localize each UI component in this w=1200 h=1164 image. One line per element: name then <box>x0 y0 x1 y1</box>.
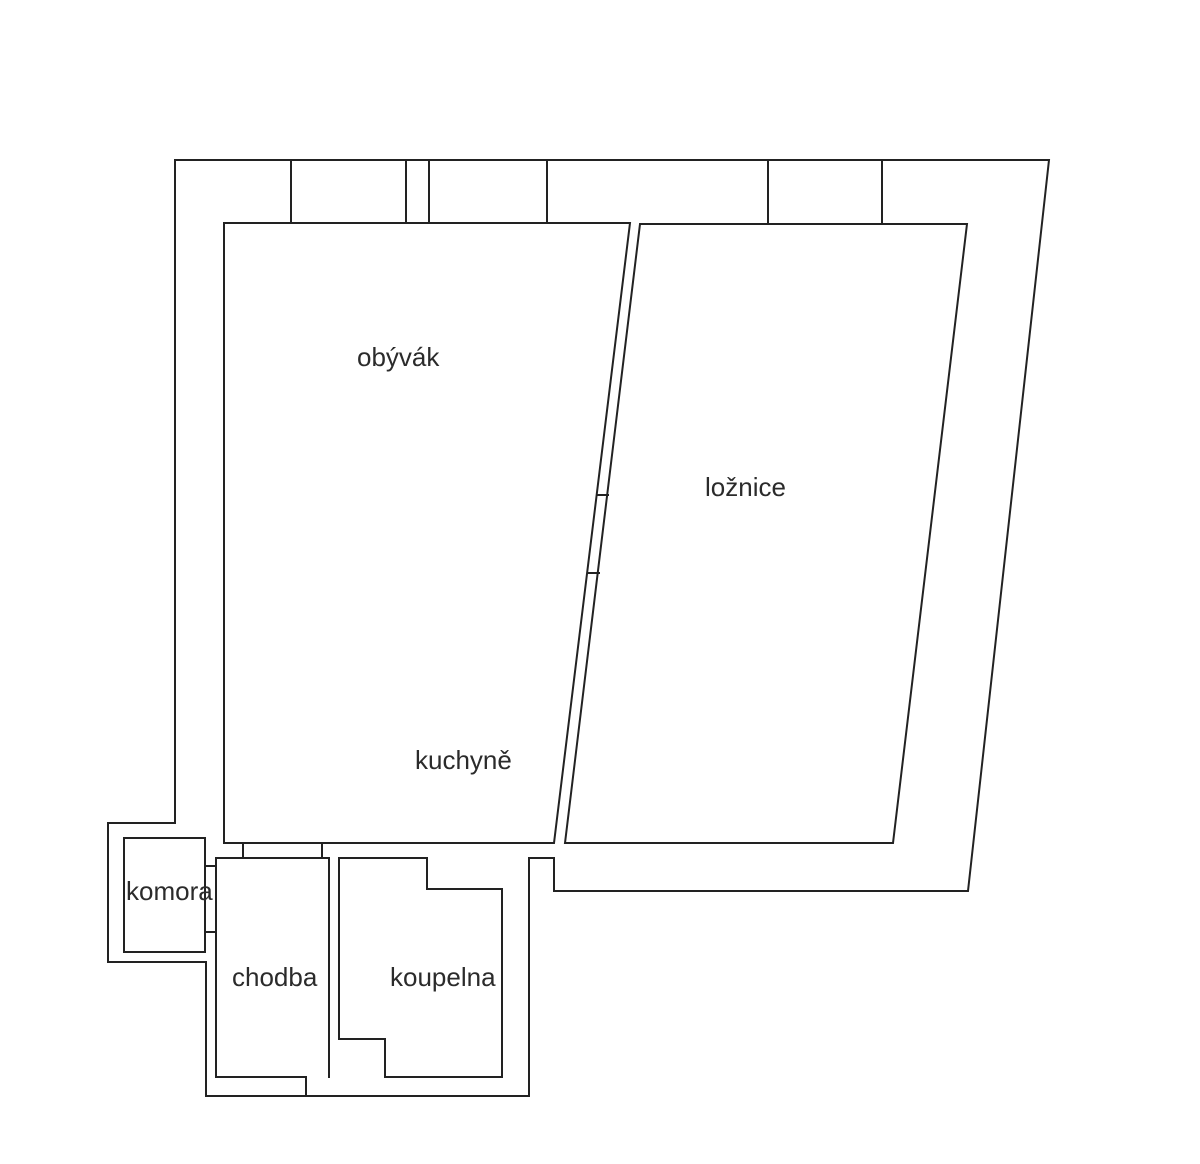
room-label-obyvak: obývák <box>357 342 440 372</box>
room-label-komora: komora <box>126 876 213 906</box>
floorplan-canvas: obývákložnicekuchyněkomorachodbakoupelna <box>0 0 1200 1164</box>
room-label-loznice: ložnice <box>705 472 786 502</box>
bedroom-outline <box>565 224 967 843</box>
room-label-koupelna: koupelna <box>390 962 496 992</box>
room-label-kuchyne: kuchyně <box>415 745 512 775</box>
outer-boundary <box>108 160 1049 1096</box>
room-label-chodba: chodba <box>232 962 318 992</box>
floorplan: obývákložnicekuchyněkomorachodbakoupelna <box>0 0 1200 1164</box>
